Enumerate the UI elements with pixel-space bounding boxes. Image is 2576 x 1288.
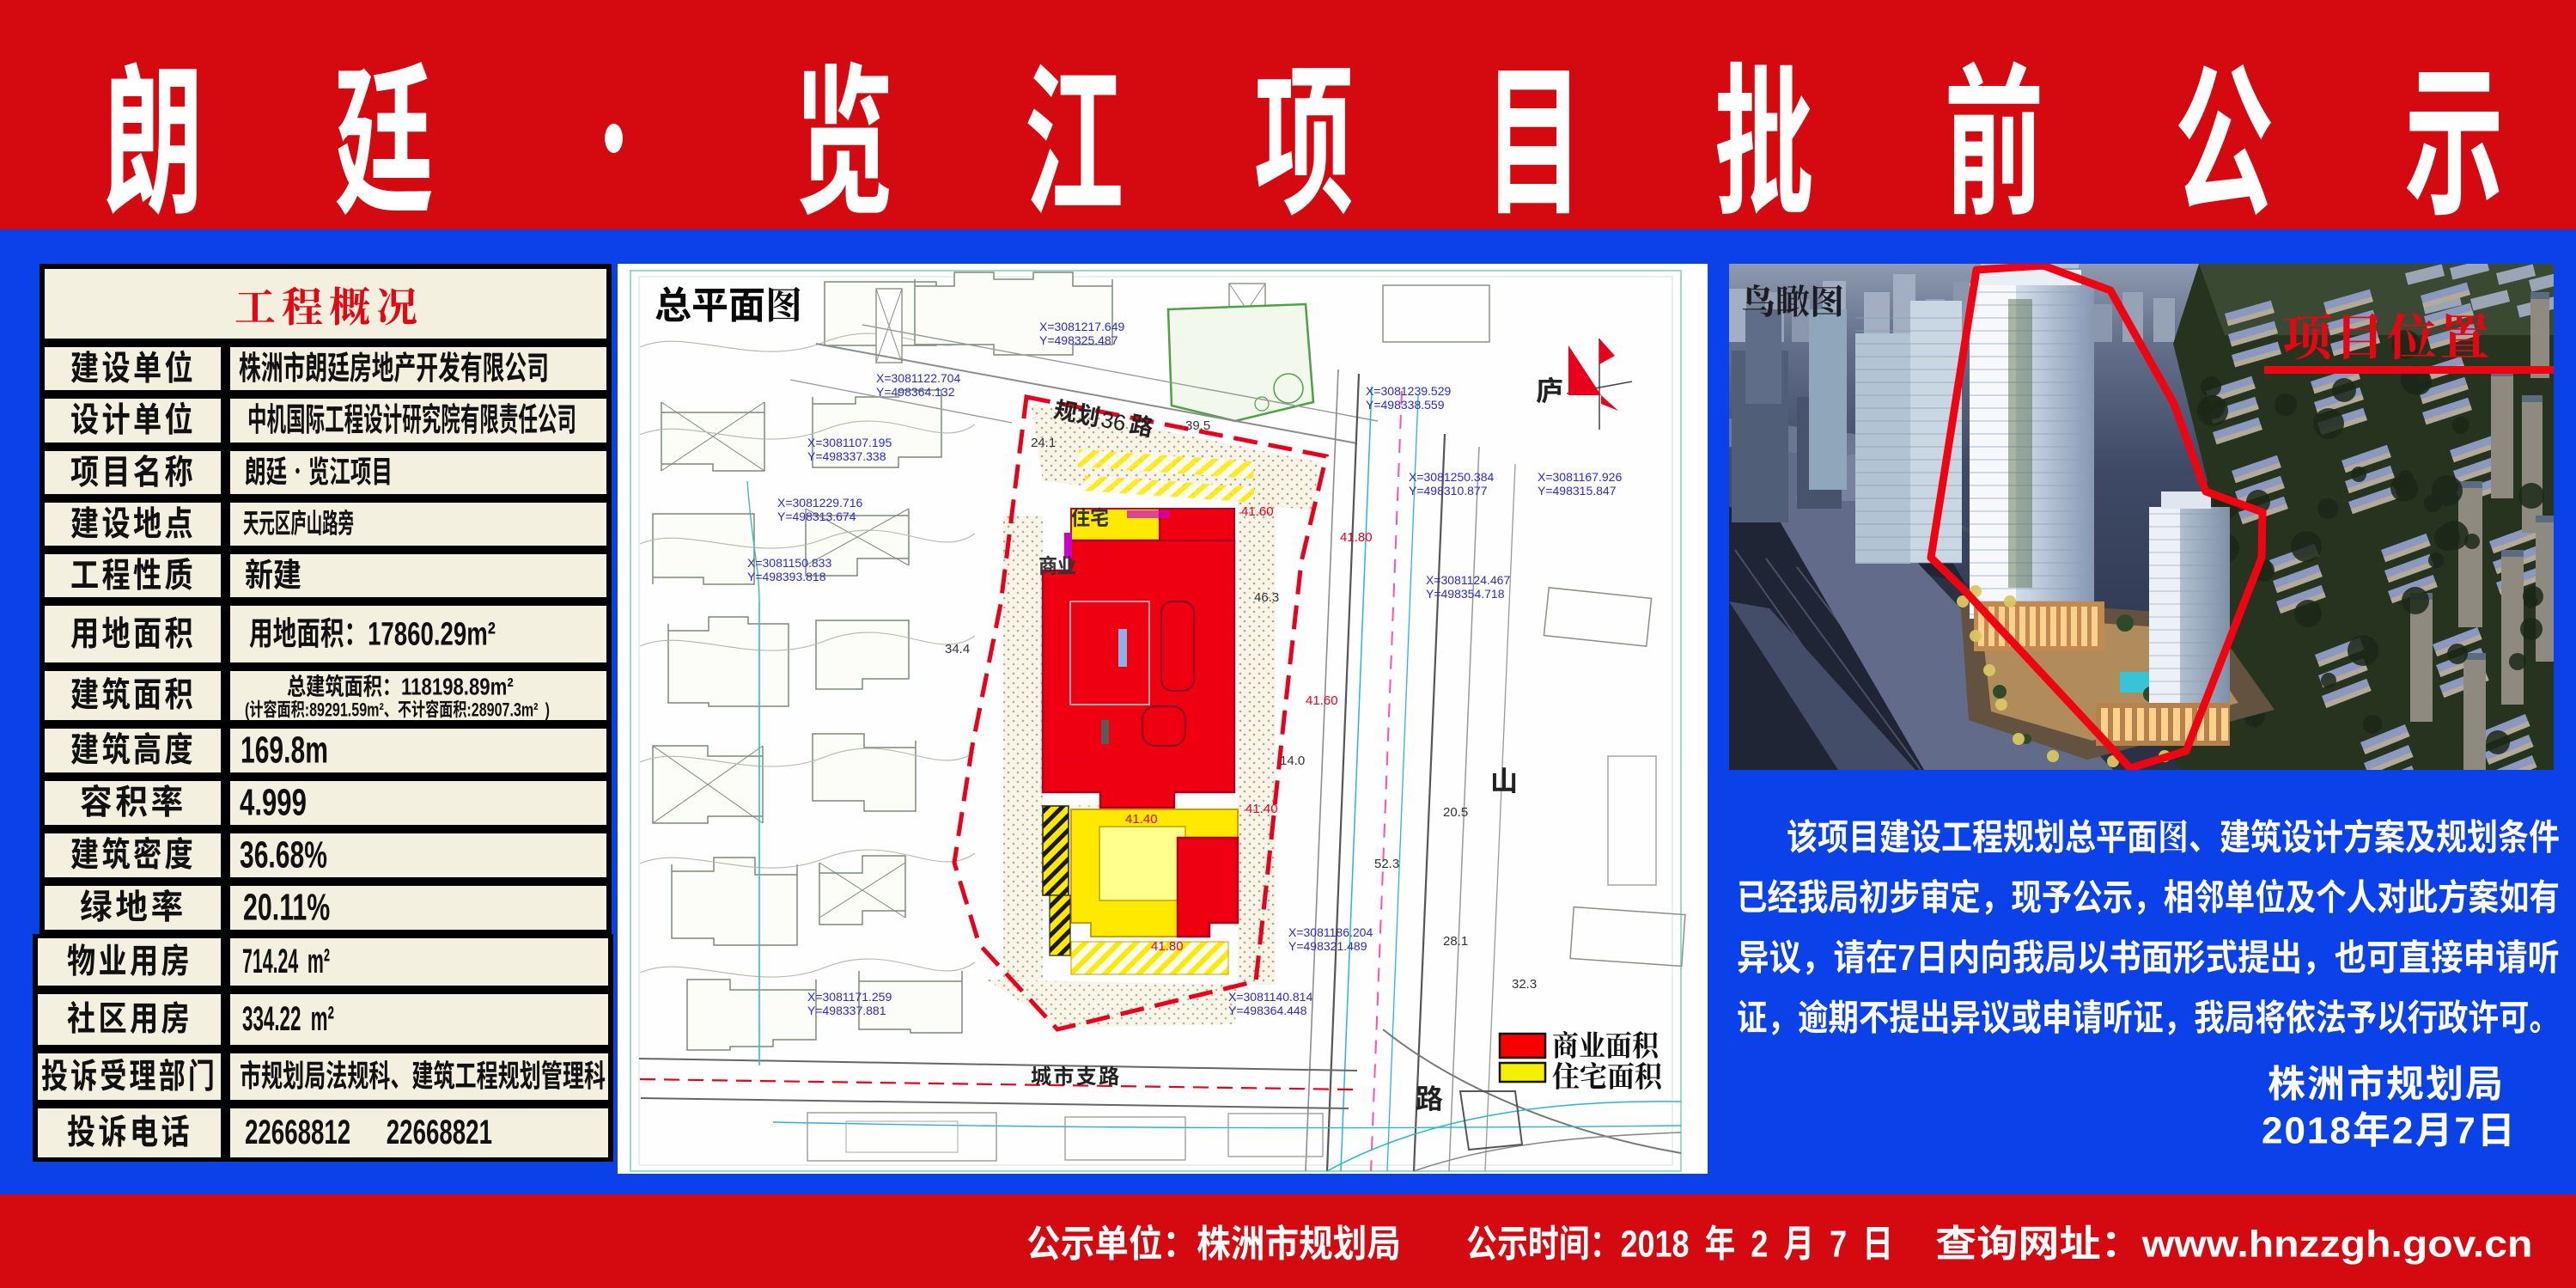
svg-text:41.70: 41.70 <box>1050 754 1082 768</box>
svg-text::28907.3m²: :28907.3m² <box>466 700 539 721</box>
svg-text:X=3081167.926: X=3081167.926 <box>1538 470 1622 484</box>
svg-text:Y=498393.818: Y=498393.818 <box>747 570 826 583</box>
svg-text:41.20: 41.20 <box>1081 549 1113 564</box>
svg-text:32.3: 32.3 <box>1512 977 1537 992</box>
svg-text:41.40: 41.40 <box>1125 812 1158 827</box>
svg-text:17860.29m²: 17860.29m² <box>368 616 496 652</box>
svg-text:41.60: 41.60 <box>1306 693 1338 708</box>
svg-text:7: 7 <box>1897 938 1915 978</box>
svg-text:X=3081239.529: X=3081239.529 <box>1366 384 1451 398</box>
svg-text:Y=498337.338: Y=498337.338 <box>807 449 886 463</box>
svg-text:334.22: 334.22 <box>242 999 301 1037</box>
svg-text:7: 7 <box>2454 1110 2476 1152</box>
svg-text:41.60: 41.60 <box>1241 504 1274 519</box>
svg-text:20.11%: 20.11% <box>243 887 330 929</box>
svg-text:X=3081122.704: X=3081122.704 <box>876 371 960 385</box>
svg-text:22668821: 22668821 <box>387 1114 492 1151</box>
svg-text:2018: 2018 <box>1621 1223 1690 1265</box>
svg-text:Y=498325.487: Y=498325.487 <box>1039 333 1118 347</box>
svg-text:169.8m: 169.8m <box>241 729 328 771</box>
svg-text:41.40: 41.40 <box>1245 802 1278 816</box>
svg-text:28.1: 28.1 <box>1443 934 1468 949</box>
svg-text:2: 2 <box>2392 1110 2415 1152</box>
svg-text:X=3081140.814: X=3081140.814 <box>1228 990 1312 1004</box>
svg-text:Y=498313.674: Y=498313.674 <box>777 510 856 523</box>
svg-text:14.0: 14.0 <box>1280 754 1305 768</box>
svg-text:41.80: 41.80 <box>1151 939 1184 954</box>
svg-text::89291.59m²: :89291.59m² <box>305 700 385 721</box>
svg-text:Y=498354.718: Y=498354.718 <box>1426 587 1505 601</box>
svg-text:Y=498337.881: Y=498337.881 <box>807 1004 886 1017</box>
svg-text:X=3081217.649: X=3081217.649 <box>1039 320 1124 333</box>
svg-text:36.68%: 36.68% <box>240 833 327 876</box>
svg-text:www.hnzzgh.gov.cn: www.hnzzgh.gov.cn <box>2141 1223 2533 1266</box>
svg-text:X=3081171.259: X=3081171.259 <box>807 990 892 1004</box>
svg-text:Y=498310.877: Y=498310.877 <box>1409 484 1488 497</box>
svg-text:52.3: 52.3 <box>1374 857 1399 871</box>
svg-text:24.1: 24.1 <box>1031 436 1056 450</box>
svg-text:2: 2 <box>1751 1223 1768 1265</box>
svg-text:Y=498321.489: Y=498321.489 <box>1288 939 1367 953</box>
svg-text:46.3: 46.3 <box>1254 590 1279 605</box>
svg-text:): ) <box>545 700 550 721</box>
svg-text:X=3081229.716: X=3081229.716 <box>777 496 862 510</box>
svg-text:X=3081250.384: X=3081250.384 <box>1409 470 1494 484</box>
svg-text:(: ( <box>245 700 250 721</box>
svg-text:m²: m² <box>311 999 334 1037</box>
svg-text:X=3081124.467: X=3081124.467 <box>1426 573 1510 587</box>
svg-text:41.80: 41.80 <box>1340 530 1373 545</box>
svg-text:Y=498364.132: Y=498364.132 <box>876 385 955 399</box>
svg-text:X=3081186.204: X=3081186.204 <box>1288 925 1373 939</box>
svg-text:X=3081150.833: X=3081150.833 <box>747 556 831 570</box>
svg-text:Y=498364.448: Y=498364.448 <box>1228 1004 1307 1017</box>
svg-text:2018: 2018 <box>2262 1110 2353 1152</box>
svg-text:Y=498315.847: Y=498315.847 <box>1538 484 1617 497</box>
svg-text:22668812: 22668812 <box>245 1114 350 1151</box>
svg-text:X=3081107.195: X=3081107.195 <box>807 436 892 449</box>
svg-text:m²: m² <box>308 942 330 980</box>
svg-text:Y=498338.559: Y=498338.559 <box>1366 398 1445 412</box>
svg-text:4.999: 4.999 <box>240 781 307 824</box>
svg-text:118198.89m²: 118198.89m² <box>401 674 514 700</box>
svg-text:39.5: 39.5 <box>1185 418 1210 433</box>
svg-text:36: 36 <box>1099 406 1128 436</box>
svg-text:34.4: 34.4 <box>945 642 970 656</box>
svg-text:7: 7 <box>1830 1223 1847 1265</box>
svg-text:20.5: 20.5 <box>1443 805 1468 820</box>
svg-text:714.24: 714.24 <box>242 942 298 980</box>
